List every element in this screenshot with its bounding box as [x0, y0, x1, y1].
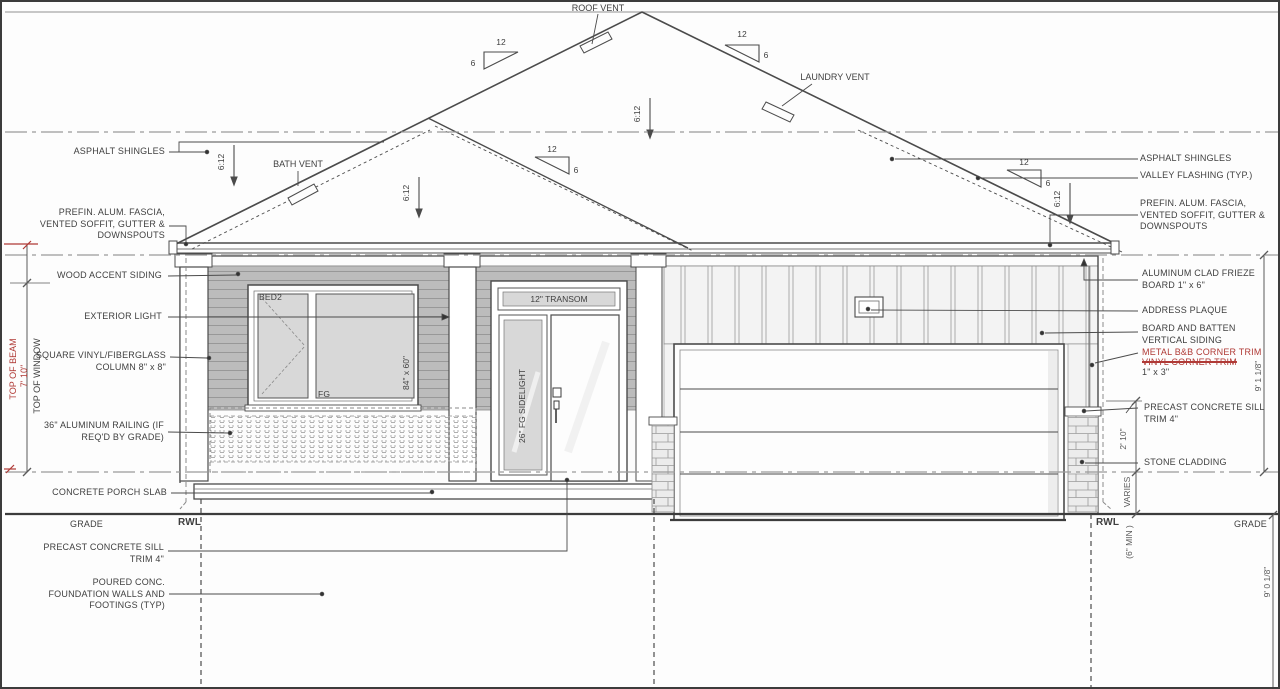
- label-laundry-vent: LAUNDRY VENT: [800, 72, 869, 82]
- dim-foundation-depth: 9' 0 1/8": [1262, 567, 1272, 598]
- slope-run-1: 12: [496, 37, 505, 47]
- slope-rise-2: 6: [764, 50, 769, 60]
- label-prefin-fascia-left: PREFIN. ALUM. FASCIA, VENTED SOFFIT, GUT…: [40, 207, 165, 242]
- entry-door-assembly: [491, 281, 627, 481]
- bath-vent-shape: [288, 184, 318, 205]
- label-bath-vent: BATH VENT: [273, 159, 323, 169]
- laundry-vent-shape: [762, 102, 794, 122]
- label-exterior-light: EXTERIOR LIGHT: [84, 311, 162, 323]
- dim-varies: VARIES: [1122, 477, 1132, 508]
- slope-ratio-3: 6:12: [632, 106, 642, 123]
- label-frieze-board: ALUMINUM CLAD FRIEZE BOARD 1" x 6": [1142, 268, 1255, 291]
- valley-flashing-line: [858, 130, 1122, 252]
- label-rwl-right: RWL: [1096, 517, 1119, 529]
- fascia-gutter: [169, 241, 1119, 254]
- roof-vents: [288, 32, 794, 205]
- dim-sill-height: 2' 10": [1118, 428, 1128, 449]
- tag-window-glazing: FG: [318, 389, 330, 401]
- dim-min-clearance: (6" MIN ): [1124, 525, 1134, 559]
- door-lock: [553, 388, 561, 397]
- label-prefin-fascia-right: PREFIN. ALUM. FASCIA, VENTED SOFFIT, GUT…: [1140, 198, 1265, 233]
- dim-top-of-beam: TOP OF BEAM: [8, 338, 18, 399]
- slope-ratio-4: 6:12: [1052, 191, 1062, 208]
- tag-sidelight: 26" FG SIDELIGHT: [517, 369, 527, 443]
- tag-window-size: 84" x 60": [401, 356, 411, 390]
- label-column: SQUARE VINYL/FIBERGLASS COLUMN 8" x 8": [36, 350, 166, 373]
- slope-run-4: 12: [1019, 157, 1028, 167]
- label-wood-accent-siding: WOOD ACCENT SIDING: [57, 270, 162, 282]
- label-stone-cladding: STONE CLADDING: [1144, 457, 1227, 469]
- slope-ratio-1: 6:12: [216, 154, 226, 171]
- slope-run-2: 12: [737, 29, 746, 39]
- label-grade-left: GRADE: [70, 519, 103, 531]
- dim-beam-height: 7' 10": [19, 365, 29, 387]
- label-foundation: POURED CONC. FOUNDATION WALLS AND FOOTIN…: [48, 577, 165, 612]
- elevation-drawing-sheet: ASPHALT SHINGLES PREFIN. ALUM. FASCIA, V…: [0, 0, 1280, 689]
- slope-rise-4: 6: [1046, 178, 1051, 188]
- window-fixed-pane: [316, 294, 414, 398]
- dim-top-of-window: TOP OF WINDOW: [32, 338, 42, 413]
- label-precast-sill-left: PRECAST CONCRETE SILL TRIM 4": [43, 542, 164, 565]
- label-valley-flashing: VALLEY FLASHING (TYP.): [1140, 170, 1252, 182]
- foundation-walls: [201, 499, 1091, 688]
- label-aluminum-railing: 36" ALUMINUM RAILING (IF REQ'D BY GRADE): [44, 420, 164, 443]
- label-rwl-left: RWL: [178, 517, 201, 529]
- tag-window-room: BED2: [259, 292, 282, 304]
- label-roof-vent: ROOF VENT: [572, 3, 625, 13]
- slope-rise-1: 6: [471, 58, 476, 68]
- label-precast-sill-right: PRECAST CONCRETE SILL TRIM 4": [1144, 402, 1265, 425]
- window-casement-pane: [258, 294, 308, 398]
- slope-rise-3: 6: [574, 165, 579, 175]
- label-asphalt-shingles-right: ASPHALT SHINGLES: [1140, 153, 1231, 165]
- label-concrete-porch-slab: CONCRETE PORCH SLAB: [52, 487, 167, 499]
- slope-ratio-2: 6:12: [401, 185, 411, 202]
- label-board-and-batten: BOARD AND BATTEN VERTICAL SIDING: [1142, 323, 1236, 346]
- dim-wall-height: 9' 1 1/8": [1253, 361, 1263, 392]
- bedroom-window: [245, 285, 421, 411]
- label-grade-right: GRADE: [1234, 519, 1267, 531]
- concrete-porch-slab: [194, 484, 657, 499]
- label-asphalt-shingles-left: ASPHALT SHINGLES: [74, 146, 165, 158]
- garage-door: [670, 344, 1066, 520]
- slope-run-3: 12: [547, 144, 556, 154]
- tag-transom: 12" TRANSOM: [530, 294, 587, 304]
- label-address-plaque: ADDRESS PLAQUE: [1142, 305, 1227, 317]
- label-corner-trim-size: 1" x 3": [1142, 367, 1169, 379]
